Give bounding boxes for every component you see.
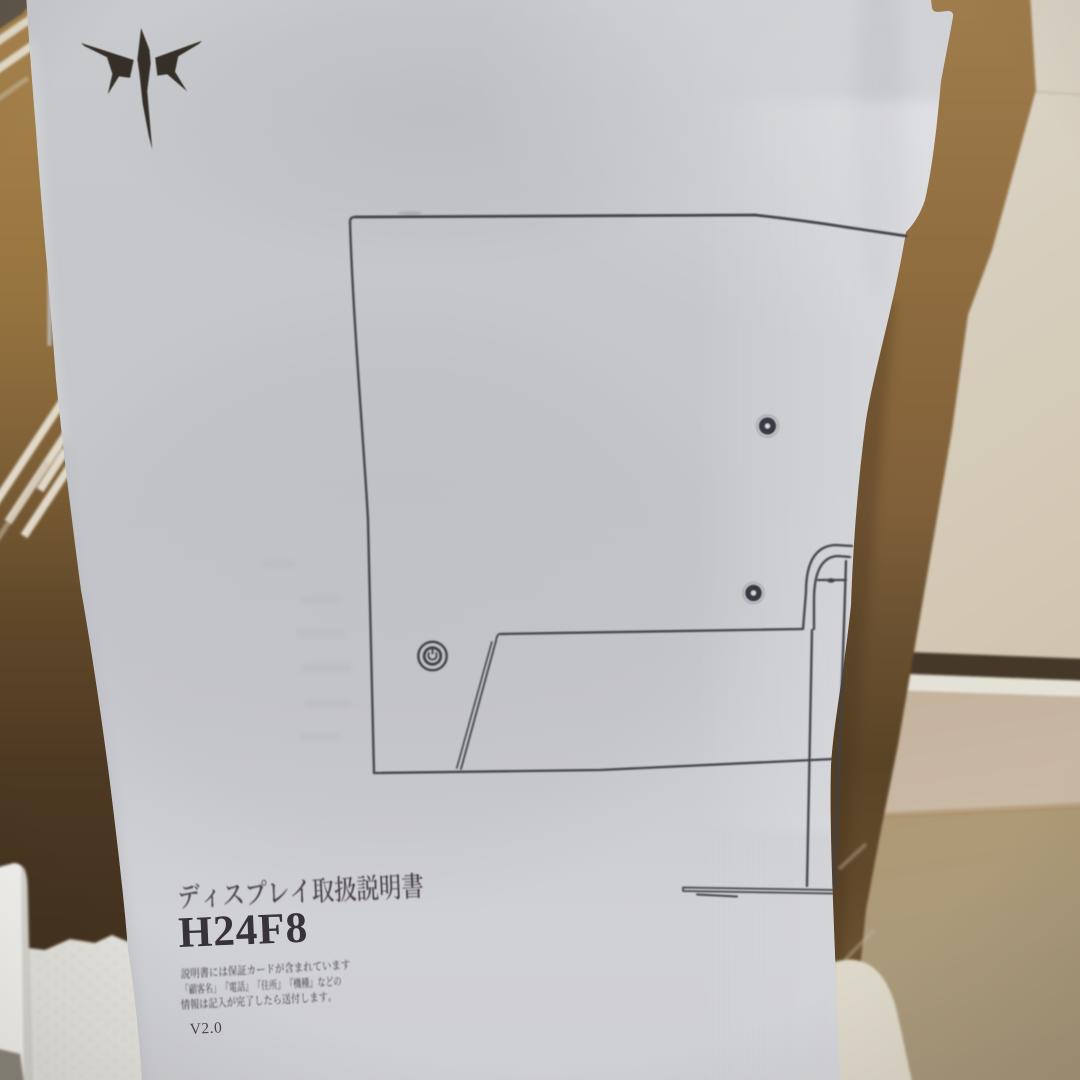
svg-text:V2.0: V2.0: [189, 1019, 222, 1038]
